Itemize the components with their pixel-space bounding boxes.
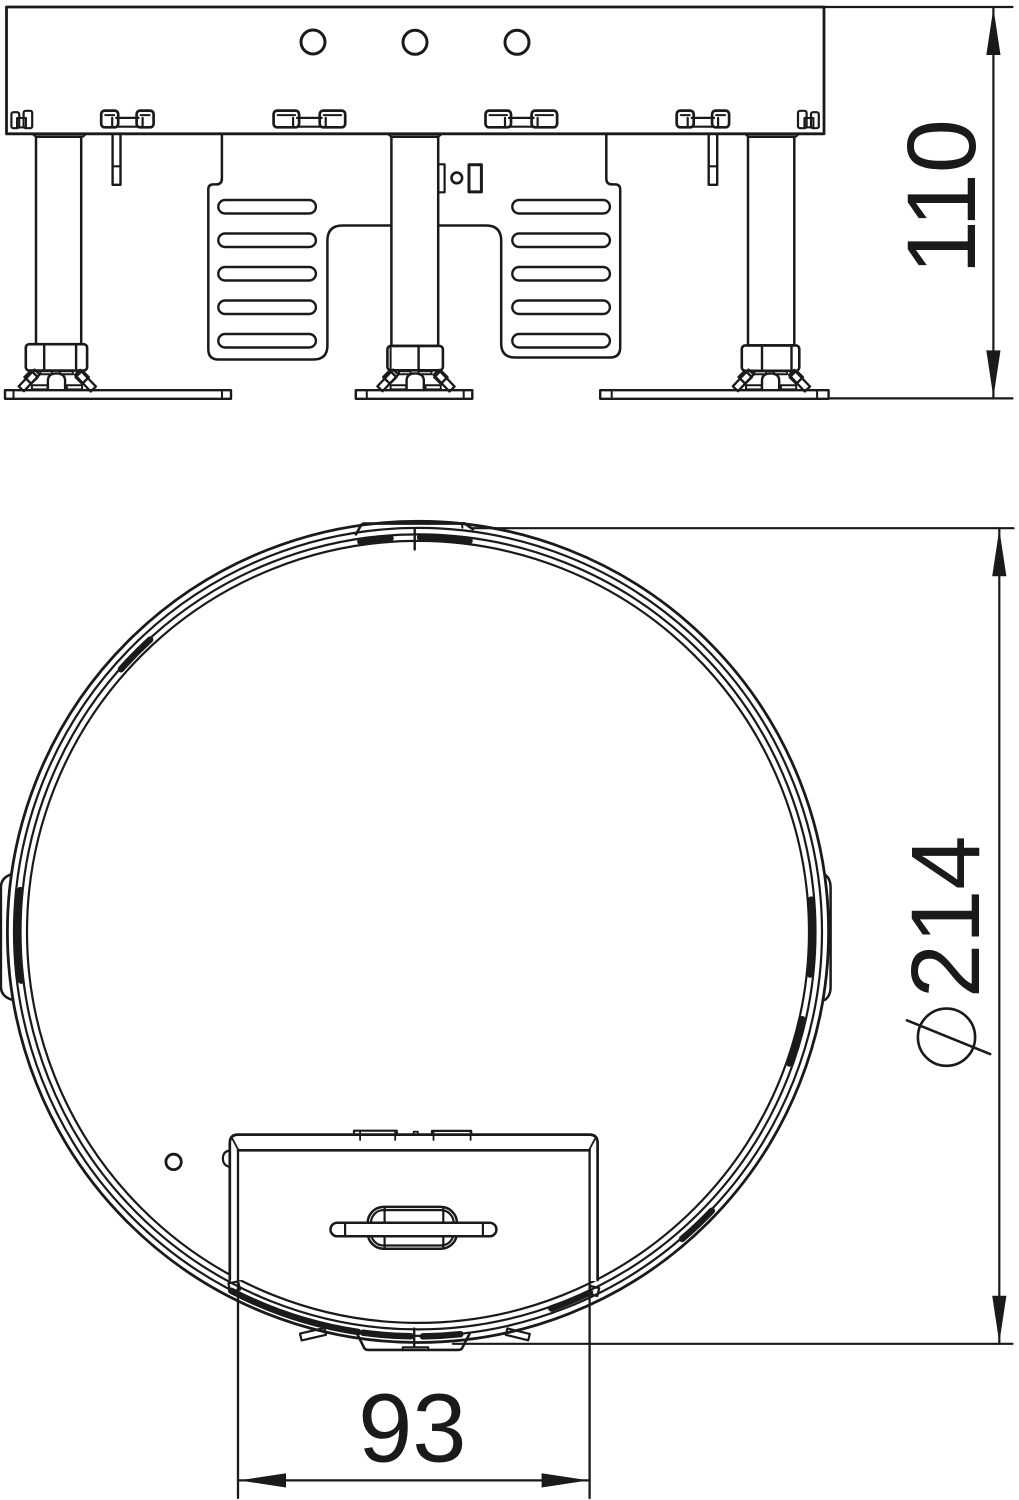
svg-text:93: 93 xyxy=(358,1374,466,1483)
svg-text:110: 110 xyxy=(887,119,996,274)
svg-text:214: 214 xyxy=(891,835,1000,998)
